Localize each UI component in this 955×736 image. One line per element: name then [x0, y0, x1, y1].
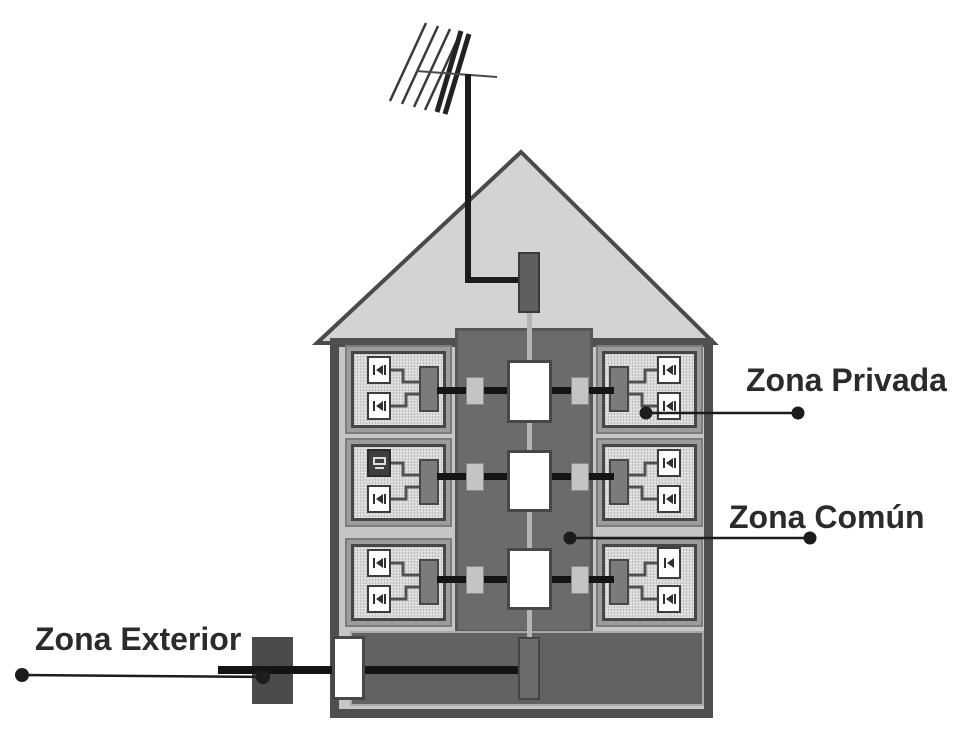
pass-register-box	[466, 566, 484, 594]
secondary-register-box	[507, 360, 552, 423]
pass-register-box	[571, 463, 589, 491]
pau-box	[419, 366, 439, 412]
pau-box	[419, 559, 439, 605]
pass-register-box	[571, 377, 589, 405]
telecom-socket-icon	[657, 449, 681, 477]
pau-box	[609, 459, 629, 505]
telecom-socket-icon	[657, 392, 681, 420]
riti-box	[518, 637, 540, 700]
pau-box	[419, 459, 439, 505]
apartment-interior	[351, 351, 446, 428]
apartment-unit	[345, 345, 452, 434]
apartment-interior	[351, 444, 446, 521]
tv-set-icon	[367, 449, 391, 477]
rits-box	[518, 252, 540, 313]
pass-register-box	[466, 377, 484, 405]
pass-register-box	[466, 463, 484, 491]
telecom-socket-icon	[367, 356, 391, 384]
apartment-unit	[345, 538, 452, 627]
secondary-register-box	[507, 548, 552, 610]
roof-shape	[317, 152, 714, 343]
zona-privada-label: Zona Privada	[746, 364, 947, 398]
zona-comun-label: Zona Común	[729, 501, 925, 535]
telecom-socket-icon	[367, 549, 391, 577]
telecom-socket-icon	[367, 585, 391, 613]
telecom-socket-icon	[657, 485, 681, 513]
apartment-interior	[602, 544, 697, 621]
telecom-socket-icon	[367, 392, 391, 420]
entry-register-box	[332, 636, 365, 700]
apartment-interior	[351, 544, 446, 621]
zona-exterior-label: Zona Exterior	[35, 623, 241, 657]
telecom-socket-icon	[657, 585, 681, 613]
ict-zones-diagram: Zona Privada Zona Común Zona Exterior	[0, 0, 955, 736]
secondary-register-box	[507, 450, 552, 512]
telecom-socket-icon	[367, 485, 391, 513]
telecom-socket-icon	[657, 547, 681, 579]
apartment-interior	[602, 444, 697, 521]
external-duct-line	[218, 666, 520, 674]
apartment-interior	[602, 351, 697, 428]
telecom-socket-icon	[657, 356, 681, 384]
apartment-unit	[345, 438, 452, 527]
apartment-unit	[596, 438, 703, 527]
pass-register-box	[571, 566, 589, 594]
